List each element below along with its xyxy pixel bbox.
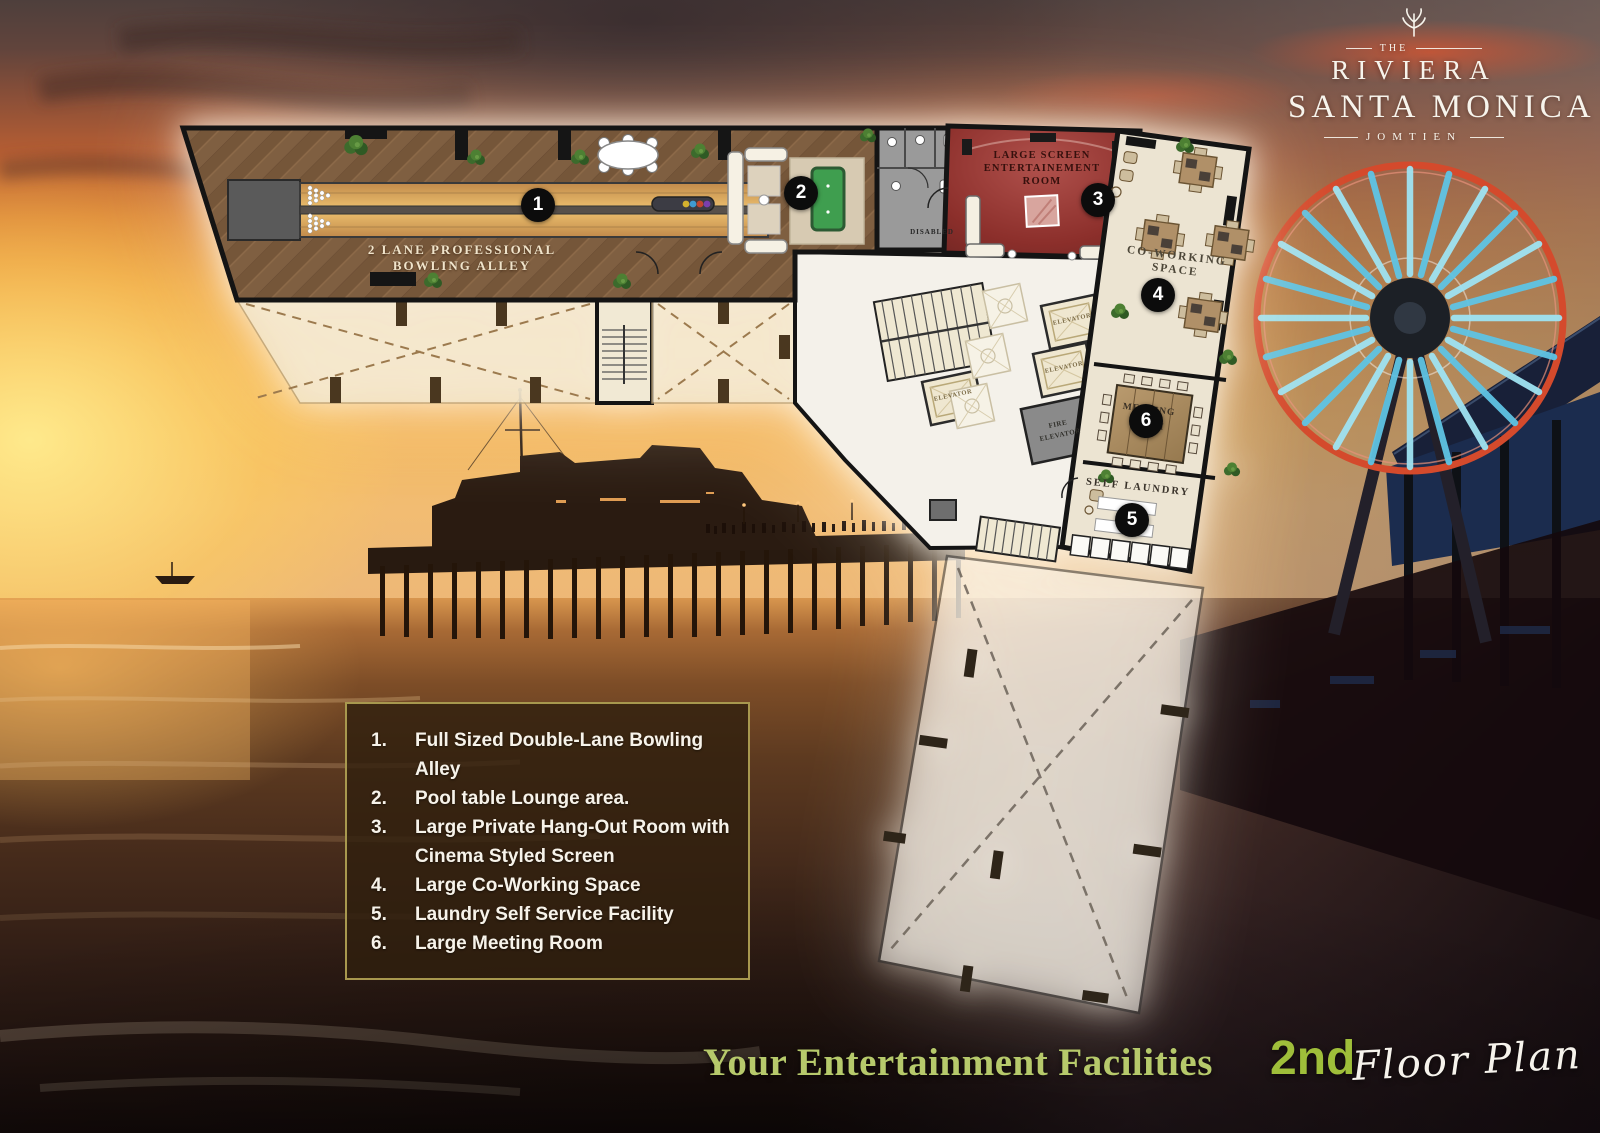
legend-item-number: 4.: [371, 871, 415, 900]
legend-item-number: 2.: [371, 784, 415, 813]
slide: 2 LANE PROFESSIONAL BOWLING ALLEY DISABL…: [0, 0, 1600, 1133]
legend-item: 6. Large Meeting Room: [371, 929, 732, 958]
bowling-alley-label: 2 LANE PROFESSIONAL BOWLING ALLEY: [332, 242, 592, 275]
divider: [1324, 137, 1358, 138]
ball-return: [652, 197, 714, 211]
divider: [1346, 48, 1372, 49]
legend-item-text: Large Private Hang-Out Room with Cinema …: [415, 813, 732, 871]
screen-table: [1025, 195, 1059, 227]
legend-item: 5. Laundry Self Service Facility: [371, 900, 732, 929]
divider: [1470, 137, 1504, 138]
brand-logo: THE RIVIERA SANTA MONICA JOMTIEN: [1288, 8, 1540, 143]
page-title: Your Entertainment Facilities: [703, 1040, 1213, 1085]
marker-coworking: 4: [1141, 278, 1175, 312]
marker-laundry: 5: [1115, 503, 1149, 537]
logo-santa-monica: SANTA MONICA: [1288, 89, 1540, 126]
void-lower: [864, 556, 1203, 1017]
legend-item: 1. Full Sized Double-Lane Bowling Alley: [371, 726, 732, 784]
floor-plan: [0, 0, 1600, 1133]
logo-jomtien-row: JOMTIEN: [1288, 131, 1540, 143]
legend-item-number: 3.: [371, 813, 415, 871]
marker-bowling: 1: [521, 188, 555, 222]
legend-item-text: Full Sized Double-Lane Bowling Alley: [415, 726, 732, 784]
marker-entertainment: 3: [1081, 183, 1115, 217]
marker-meeting: 6: [1129, 404, 1163, 438]
logo-jomtien: JOMTIEN: [1366, 131, 1462, 143]
legend-item-text: Pool table Lounge area.: [415, 784, 732, 813]
logo-riviera: RIVIERA: [1288, 55, 1540, 86]
disabled-toilet-label: DISABLED: [899, 228, 965, 237]
legend-item: 3. Large Private Hang-Out Room with Cine…: [371, 813, 732, 871]
elevator-lobby: [795, 252, 1103, 561]
legend-item: 4. Large Co-Working Space: [371, 871, 732, 900]
entertainment-room-label: LARGE SCREEN ENTERTAINEMENT ROOM: [972, 149, 1112, 188]
legend-item-number: 1.: [371, 726, 415, 784]
void-middle: [652, 300, 795, 403]
legend-item-text: Laundry Self Service Facility: [415, 900, 732, 929]
void-left: [237, 300, 597, 403]
dining-table: [598, 135, 658, 176]
marker-pool-lounge: 2: [784, 176, 818, 210]
legend-item-text: Large Meeting Room: [415, 929, 732, 958]
legend-item-number: 6.: [371, 929, 415, 958]
legend-item: 2. Pool table Lounge area.: [371, 784, 732, 813]
stairwell-left: [597, 300, 652, 403]
divider: [1416, 48, 1482, 49]
logo-the-row: THE: [1288, 43, 1540, 54]
legend-item-number: 5.: [371, 900, 415, 929]
floor-number: 2nd: [1270, 1031, 1355, 1086]
fleur-icon: [1396, 8, 1432, 38]
legend-item-text: Large Co-Working Space: [415, 871, 732, 900]
facilities-legend: 1. Full Sized Double-Lane Bowling Alley …: [345, 702, 750, 980]
logo-the: THE: [1380, 43, 1408, 54]
